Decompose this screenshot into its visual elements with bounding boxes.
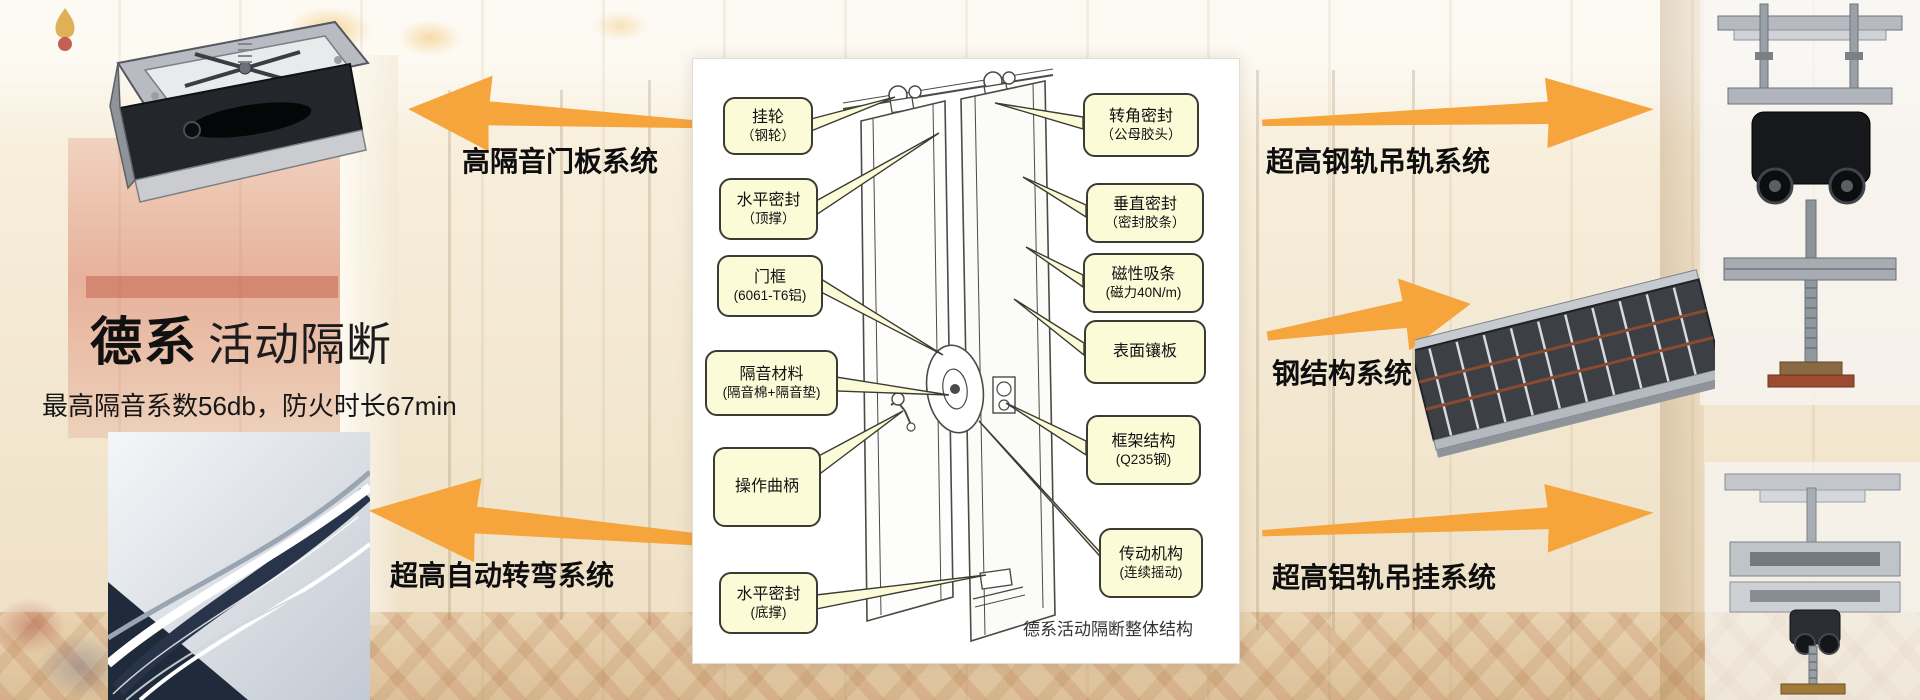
photo-aluminum-rail-hanger [1705, 462, 1920, 700]
slide-canvas: 德系活动隔断 最高隔音系数56db，防火时长67min [0, 0, 1920, 700]
photo-curved-track [108, 432, 370, 700]
callout-door-frame: 门框 (6061-T6铝) [717, 255, 823, 317]
callout-vertical-seal: 垂直密封 （密封胶条） [1086, 183, 1204, 243]
label-door-panel-system: 高隔音门板系统 [462, 140, 658, 180]
page-title: 德系活动隔断 [90, 300, 610, 375]
carpet-corner-pattern [0, 556, 120, 700]
callout-horizontal-seal-top: 水平密封 （顶撑） [719, 178, 818, 240]
label-steel-rail-system: 超高钢轨吊轨系统 [1266, 140, 1490, 180]
diagram-panel: 挂轮 （钢轮） 水平密封 （顶撑） 门框 (6061-T6铝) 隔音材料 (隔音… [692, 58, 1240, 664]
hotel-logo-emblem [40, 4, 90, 56]
callout-transmission: 传动机构 (连续摇动) [1099, 528, 1203, 598]
photo-steel-structure [1415, 238, 1715, 473]
callout-horizontal-seal-bottom: 水平密封 (底撑) [719, 572, 818, 634]
label-steel-structure-system: 钢结构系统 [1272, 352, 1412, 392]
wall-seam [1256, 70, 1259, 630]
callout-corner-seal: 转角密封 （公母胶头） [1083, 93, 1199, 157]
label-aluminum-rail-system: 超高铝轨吊挂系统 [1272, 556, 1496, 596]
title-primary: 德系 [90, 314, 198, 372]
callout-magnetic-strip: 磁性吸条 (磁力40N/m) [1083, 253, 1204, 313]
label-auto-turning-system: 超高自动转弯系统 [390, 554, 614, 594]
callout-frame-structure: 框架结构 (Q235钢) [1086, 415, 1201, 485]
title-secondary: 活动隔断 [208, 319, 392, 370]
photo-steel-rail-hanger [1700, 0, 1920, 405]
title-subtitle: 最高隔音系数56db，防火时长67min [42, 386, 602, 423]
photo-door-top-mechanism [100, 8, 390, 313]
diagram-caption: 德系活动隔断整体结构 [1023, 615, 1193, 640]
callout-hanging-wheel: 挂轮 （钢轮） [723, 97, 813, 155]
callout-sound-insulation: 隔音材料 (隔音棉+隔音垫) [705, 350, 838, 416]
callout-surface-panel: 表面镶板 [1084, 320, 1206, 384]
callout-operating-crank: 操作曲柄 [713, 447, 821, 527]
